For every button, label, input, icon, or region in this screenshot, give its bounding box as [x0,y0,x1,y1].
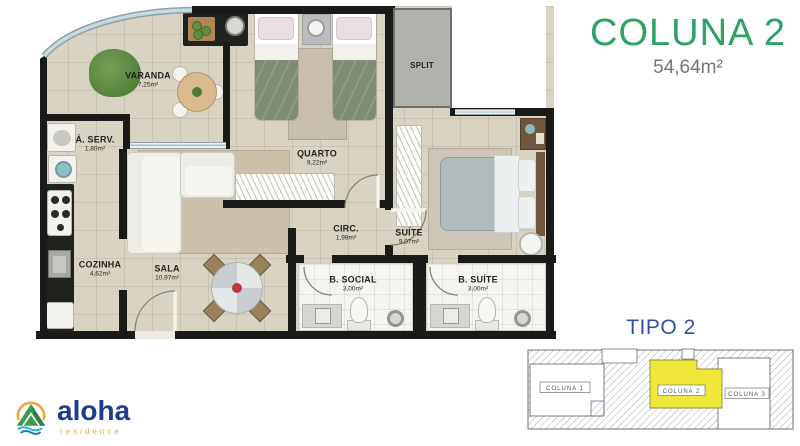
brand-tagline: residence [57,427,130,436]
room-name: COZINHA [79,260,121,271]
wall [175,331,556,339]
room-label-varanda: VARANDA 7,25m² [125,71,171,90]
room-name: SUÍTE [395,228,423,239]
room-label-suite: SUÍTE 9,07m² [395,228,423,247]
keyplan-unit-3-label: COLUNA 3 [728,392,766,398]
counter-sink [225,16,245,36]
keyplan-diagram: COLUNA 1 COLUNA 2 COLUNA 3 [527,348,795,434]
single-bed [333,14,376,120]
room-label-b-social: B. SOCIAL 3,00m² [329,275,376,294]
keyplan-title: TIPO 2 [527,316,795,340]
room-area: 4,62m² [79,271,121,279]
entrance-threshold [135,331,175,339]
laundry-tank [47,123,76,152]
wall [36,331,135,339]
room-label-split: SPLIT [410,61,434,71]
room-name: B. SOCIAL [329,275,376,286]
room-label-circ: CIRC. 1,98m² [333,224,359,243]
keyplan: TIPO 2 COLUNA 1 COLUNA 2 COLUNA 3 [527,316,795,434]
room-area: 9,07m² [395,239,423,247]
toilet [478,297,496,323]
single-bed [255,14,298,120]
lamp [307,19,325,37]
room-area: 3,00m² [458,286,498,294]
headboard [536,152,545,236]
page: VARANDA 7,25m² Á. SERV. 1,80m² COZINHA 4… [0,0,800,446]
room-name: VARANDA [125,71,171,82]
kitchen-sink [48,250,71,278]
wall [123,114,130,149]
refrigerator [46,302,74,329]
room-name: Á. SERV. [75,135,114,146]
split-condenser-area [393,8,452,108]
room-area: 3,00m² [329,286,376,294]
exterior-area [452,4,546,108]
unit-header: COLUNA 2 54,64m² [572,12,800,79]
room-area: 9,22m² [297,160,337,168]
sofa-chaise [180,152,235,198]
suite-window [455,109,515,115]
room-name: SALA [154,264,179,275]
toilet [350,297,368,323]
room-label-a-serv: Á. SERV. 1,80m² [75,135,114,154]
balcony-sliding-door [130,142,226,149]
room-name: B. SUÍTE [458,275,498,286]
room-area: 7,25m² [125,82,171,90]
brand-logo: aloha residence [13,394,130,438]
suite-nightstand [520,118,546,150]
wall [183,6,395,14]
wall [288,228,296,339]
wall [40,52,47,339]
unit-title: COLUNA 2 [572,12,800,55]
side-table [519,232,543,256]
room-name: CIRC. [333,224,359,235]
room-label-sala: SALA 10,97m² [154,264,179,283]
room-label-quarto: QUARTO 9,22m² [297,149,337,168]
washing-machine [48,155,77,183]
cutting-board [188,17,215,41]
room-name: SPLIT [410,61,434,71]
keyplan-unit-2-label: COLUNA 2 [663,389,701,395]
vanity [430,304,470,328]
room-label-cozinha: COZINHA 4,62m² [79,260,121,279]
table-flowers [232,283,242,293]
aloha-logo-icon [13,394,49,438]
wall [119,149,127,239]
bedroom-wardrobe [235,173,335,202]
wall [223,42,230,149]
suite-wardrobe [396,125,422,227]
wall [385,6,393,210]
stove [47,190,72,236]
keyplan-unit-1-label: COLUNA 1 [546,386,584,392]
brand-name: aloha [57,397,130,425]
vanity [302,304,342,328]
wall [458,255,556,263]
floor-plan: VARANDA 7,25m² Á. SERV. 1,80m² COZINHA 4… [30,4,558,344]
unit-area: 54,64m² [572,57,800,79]
wall [413,255,426,339]
wave-icon [21,431,40,434]
table-plate [192,87,202,97]
double-bed [440,155,539,233]
room-area: 1,98m² [333,235,359,243]
wall [223,200,345,208]
shower [387,310,404,327]
wall [40,114,130,121]
room-area: 1,80m² [75,146,114,154]
wall [546,108,554,339]
wave-icon [18,427,41,430]
room-area: 10,97m² [154,275,179,283]
wall [378,200,385,208]
sofa [127,152,182,254]
room-label-b-suite: B. SUÍTE 3,00m² [458,275,498,294]
room-name: QUARTO [297,149,337,160]
